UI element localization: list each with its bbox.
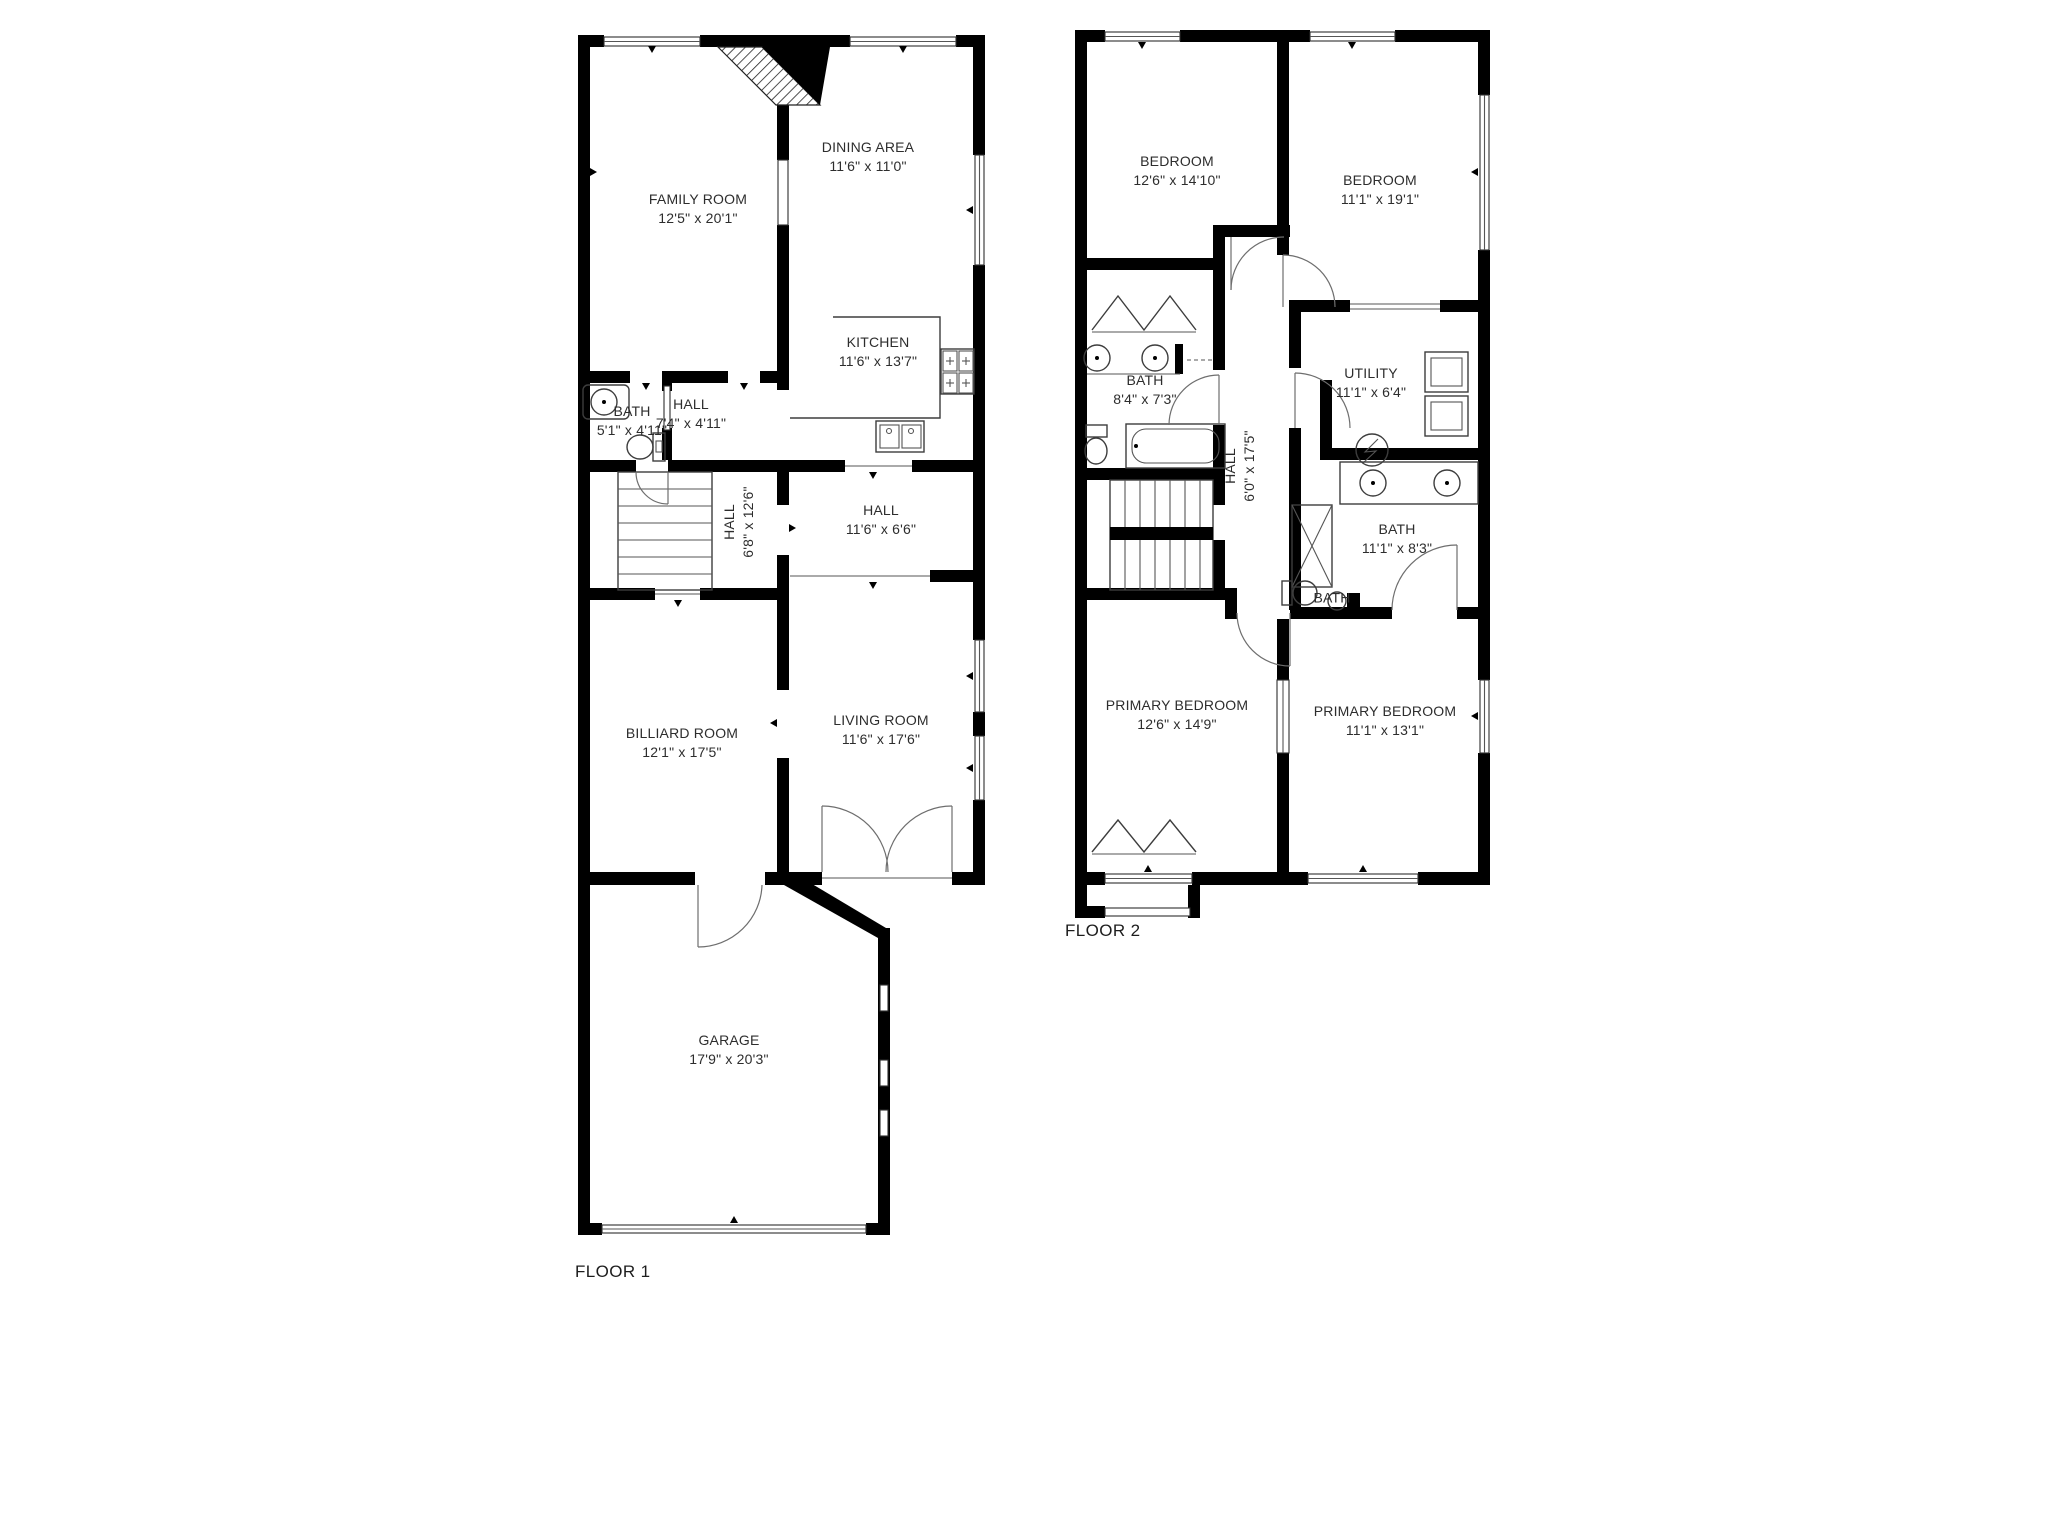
- room-dims: 7'4" x 4'11": [656, 414, 726, 433]
- bath3-vanity-icon: [1340, 462, 1478, 504]
- room-dims: 17'9" x 20'3": [689, 1050, 768, 1069]
- room-dims: 8'4" x 7'3": [1113, 390, 1176, 409]
- room-dims: 11'6" x 13'7": [839, 352, 917, 371]
- room-label-bedroom-left: BEDROOM 12'6" x 14'10": [1133, 152, 1220, 190]
- room-dims: 12'6" x 14'9": [1106, 715, 1249, 734]
- room-name: BILLIARD ROOM: [626, 724, 738, 743]
- bath2-sink-icon: [1084, 345, 1212, 374]
- room-name: HALL: [656, 395, 726, 414]
- floor1-title: FLOOR 1: [575, 1262, 651, 1282]
- room-name: BEDROOM: [1341, 171, 1419, 190]
- room-dims: 12'6" x 14'10": [1133, 171, 1220, 190]
- room-label-hall-stairs: HALL 6'8" x 12'6": [720, 486, 758, 557]
- stove-icon: [941, 349, 974, 394]
- room-label-utility: UTILITY 11'1" x 6'4": [1336, 364, 1406, 402]
- room-label-primary-bedroom-right: PRIMARY BEDROOM 11'1" x 13'1": [1314, 702, 1457, 740]
- floor2-stairs-icon: [1110, 480, 1213, 590]
- room-label-hall-center: HALL 11'6" x 6'6": [846, 501, 916, 539]
- room-name: HALL: [846, 501, 916, 520]
- floor1-plan: [578, 35, 985, 1235]
- room-label-bath-top: BATH 8'4" x 7'3": [1113, 371, 1176, 409]
- room-label-garage: GARAGE 17'9" x 20'3": [689, 1031, 768, 1069]
- floor1-stairs-icon: [618, 472, 712, 590]
- room-name: PRIMARY BEDROOM: [1314, 702, 1457, 721]
- fireplace-icon: [718, 47, 830, 105]
- bath2-toilet-icon: [1085, 425, 1107, 464]
- room-label-bath-small: BATH: [1313, 589, 1350, 608]
- room-name: HALL: [1221, 430, 1240, 501]
- room-label-family-room: FAMILY ROOM 12'5" x 20'1": [649, 190, 747, 228]
- room-dims: 11'1" x 13'1": [1314, 721, 1457, 740]
- room-dims: 11'6" x 11'0": [822, 157, 914, 176]
- room-name: BATH: [1113, 371, 1176, 390]
- room-label-dining-area: DINING AREA 11'6" x 11'0": [822, 138, 914, 176]
- room-dims: 6'8" x 12'6": [739, 486, 758, 557]
- room-name: UTILITY: [1336, 364, 1406, 383]
- room-dims: 11'6" x 17'6": [833, 730, 929, 749]
- room-dims: 12'1" x 17'5": [626, 743, 738, 762]
- room-name: BATH: [1313, 589, 1350, 608]
- room-name: BATH: [1362, 520, 1432, 539]
- room-label-living-room: LIVING ROOM 11'6" x 17'6": [833, 711, 929, 749]
- room-name: BEDROOM: [1133, 152, 1220, 171]
- room-label-kitchen: KITCHEN 11'6" x 13'7": [839, 333, 917, 371]
- room-dims: 6'0" x 17'5": [1240, 430, 1259, 501]
- room-name: HALL: [720, 486, 739, 557]
- room-name: LIVING ROOM: [833, 711, 929, 730]
- floor2-title: FLOOR 2: [1065, 921, 1141, 941]
- room-dims: 11'6" x 6'6": [846, 520, 916, 539]
- room-name: PRIMARY BEDROOM: [1106, 696, 1249, 715]
- room-label-hall2: HALL 6'0" x 17'5": [1221, 430, 1259, 501]
- floorplan-page: FAMILY ROOM 12'5" x 20'1" DINING AREA 11…: [0, 0, 2048, 1536]
- room-label-billiard-room: BILLIARD ROOM 12'1" x 17'5": [626, 724, 738, 762]
- room-dims: 12'5" x 20'1": [649, 209, 747, 228]
- room-name: DINING AREA: [822, 138, 914, 157]
- room-name: FAMILY ROOM: [649, 190, 747, 209]
- room-dims: 11'1" x 8'3": [1362, 539, 1432, 558]
- room-label-primary-bedroom-left: PRIMARY BEDROOM 12'6" x 14'9": [1106, 696, 1249, 734]
- room-dims: 11'1" x 19'1": [1341, 190, 1419, 209]
- floorplan-graphic: [0, 0, 2048, 1536]
- room-label-bedroom-right: BEDROOM 11'1" x 19'1": [1341, 171, 1419, 209]
- room-name: GARAGE: [689, 1031, 768, 1050]
- room-label-hall-front: HALL 7'4" x 4'11": [656, 395, 726, 433]
- room-label-bath-middle: BATH 11'1" x 8'3": [1362, 520, 1432, 558]
- bathtub-icon: [1126, 424, 1225, 468]
- kitchen-sink-icon: [876, 421, 924, 452]
- room-name: KITCHEN: [839, 333, 917, 352]
- room-dims: 11'1" x 6'4": [1336, 383, 1406, 402]
